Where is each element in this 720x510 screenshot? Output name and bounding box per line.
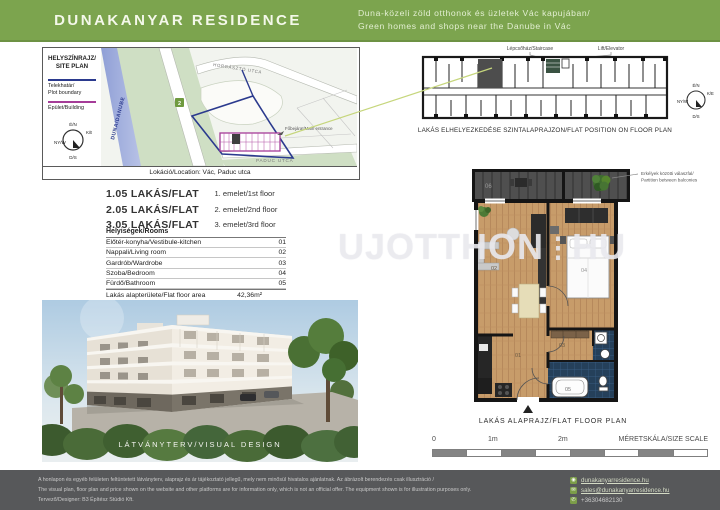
floor-position-plan: Lépcsőház/Staircase Lift/Elevator bbox=[415, 42, 675, 127]
table-row: Szoba/Bedroom 04 bbox=[106, 269, 286, 279]
location-caption: Lokáció/Location: Vác, Paduc utca bbox=[43, 166, 357, 179]
email-row: ✉ sales@dunakanyarresidence.hu bbox=[570, 485, 670, 495]
entrance-marker bbox=[523, 405, 533, 413]
rooms-table: Helyiségek/Rooms Előtér-konyha/Vestibule… bbox=[106, 228, 286, 311]
scale-2m: 2m bbox=[558, 436, 568, 443]
label-bathroom: 05 bbox=[565, 387, 571, 393]
phone-row: ✆ +36304682130 bbox=[570, 495, 670, 505]
building-render bbox=[42, 300, 358, 462]
disclaimer-hu: A honlapon és egyéb felületen feltüntete… bbox=[38, 475, 538, 485]
website-row: ◉ dunakanyarresidence.hu bbox=[570, 475, 670, 485]
flat-list: 1.05 LAKÁS/FLAT 1. emelet/1st floor 2.05… bbox=[106, 184, 277, 231]
label-vestibule: 01 bbox=[515, 353, 521, 359]
header-subtitle-hu: Duna-közeli zöld otthonok és üzletek Vác… bbox=[358, 7, 708, 20]
website-link[interactable]: dunakanyarresidence.hu bbox=[581, 477, 649, 484]
footer-disclaimer: A honlapon és egyéb felületen feltüntete… bbox=[38, 475, 538, 505]
globe-icon: ◉ bbox=[570, 477, 577, 484]
plot-boundary-swatch bbox=[48, 79, 96, 81]
partition-note-line1: Erkélyek közötti válaszfal/ bbox=[641, 171, 694, 176]
phone-icon: ✆ bbox=[570, 497, 577, 504]
compass-s: D/S bbox=[69, 155, 77, 160]
table-row: Előtér-konyha/Vestibule-kitchen 01 bbox=[106, 238, 286, 248]
staircase-label: Lépcsőház/Staircase bbox=[507, 46, 554, 52]
svg-text:NY/W: NY/W bbox=[677, 99, 688, 104]
scale-0: 0 bbox=[432, 436, 436, 443]
toilet bbox=[599, 376, 607, 386]
flat-floor-plan: Erkélyek közötti válaszfal/ Partition be… bbox=[455, 166, 720, 416]
scale-1m: 1m bbox=[488, 436, 498, 443]
building-swatch bbox=[48, 101, 96, 103]
compass-w: NY/W bbox=[54, 140, 67, 145]
compass-e: K/E bbox=[86, 130, 92, 135]
page-title: DUNAKANYAR RESIDENCE bbox=[0, 12, 356, 29]
footer-bar: A honlapon és egyéb felületen feltüntete… bbox=[0, 470, 720, 510]
svg-text:K/E: K/E bbox=[707, 91, 714, 96]
building-footprint bbox=[220, 133, 280, 151]
scale-label: MÉRETSKÁLA/SIZE SCALE bbox=[619, 436, 708, 443]
svg-text:2: 2 bbox=[178, 101, 181, 107]
mail-icon: ✉ bbox=[570, 487, 577, 494]
label-wardrobe: 03 bbox=[559, 343, 565, 349]
scale-bar: 0 1m 2m MÉRETSKÁLA/SIZE SCALE bbox=[430, 436, 708, 458]
label-living: 02 bbox=[491, 266, 497, 272]
washing-machine bbox=[595, 332, 607, 344]
site-plan-map: DUNA/DANUBE HORGÁSZTÓ UTCA Főbejárat/Mai… bbox=[101, 48, 357, 166]
highlighted-flat bbox=[478, 59, 502, 88]
site-plan-legend: HELYSZÍNRAJZ/ SITE PLAN Telekhatár/ Plot… bbox=[43, 48, 102, 166]
site-plan-panel: HELYSZÍNRAJZ/ SITE PLAN Telekhatár/ Plot… bbox=[42, 47, 360, 180]
table-row: Nappali/Living room 02 bbox=[106, 248, 286, 258]
label-bedroom: 04 bbox=[581, 268, 587, 274]
flat-row: 1.05 LAKÁS/FLAT 1. emelet/1st floor bbox=[106, 184, 277, 200]
wardrobe-room-furniture bbox=[551, 331, 589, 338]
position-plan-caption: LAKÁS ELHELYEZKEDÉSE SZINTALAPRAJZON/FLA… bbox=[413, 127, 677, 134]
header-subtitle-en: Green homes and shops near the Danube in… bbox=[358, 20, 708, 33]
compass-n: É/N bbox=[69, 121, 77, 127]
highlighted-unit bbox=[232, 134, 240, 144]
header-bar: DUNAKANYAR RESIDENCE Duna-közeli zöld ot… bbox=[0, 0, 720, 42]
disclaimer-en: The visual plan, floor plan and price sh… bbox=[38, 485, 538, 495]
scale-bar-segments bbox=[432, 449, 708, 457]
svg-text:D/S: D/S bbox=[693, 114, 700, 119]
designer-credit: Tervező/Designer: B3 Építész Stúdió Kft. bbox=[38, 495, 538, 505]
email-link[interactable]: sales@dunakanyarresidence.hu bbox=[581, 487, 670, 494]
elevator-block bbox=[562, 59, 569, 68]
entrance-label: Főbejárat/Main entrance bbox=[285, 126, 333, 131]
label-balcony: 06 bbox=[485, 184, 492, 190]
header-subtitle: Duna-közeli zöld otthonok és üzletek Vác… bbox=[358, 7, 708, 32]
elevator-label: Lift/Elevator bbox=[598, 46, 625, 52]
site-plan-title: HELYSZÍNRAJZ/ SITE PLAN bbox=[43, 55, 101, 71]
compass-rose-small: É/N K/E NY/W D/S bbox=[676, 78, 716, 122]
table-row: Fürdő/Bathroom 05 bbox=[106, 279, 286, 289]
table-row: Gardrób/Wardrobe 03 bbox=[106, 258, 286, 268]
street-bottom-label: PADUC UTCA bbox=[256, 158, 294, 163]
partition-note-line2: Partition between balconies bbox=[641, 178, 698, 183]
phone-number[interactable]: +36304682130 bbox=[581, 497, 622, 504]
floor-plan-caption: LAKÁS ALAPRAJZ/FLAT FLOOR PLAN bbox=[458, 418, 648, 425]
footer-contacts: ◉ dunakanyarresidence.hu ✉ sales@dunakan… bbox=[570, 475, 670, 505]
entrance-opening bbox=[517, 397, 539, 403]
svg-text:É/N: É/N bbox=[693, 83, 700, 88]
compass-rose: É/N K/E NY/W D/S bbox=[54, 118, 92, 162]
plot-boundary-label: Telekhatár/ Plot boundary bbox=[48, 83, 81, 96]
visual-caption: LÁTVÁNYTERV/VISUAL DESIGN bbox=[42, 440, 358, 449]
balcony-furniture bbox=[510, 178, 532, 187]
building-label: Épület/Building bbox=[48, 105, 84, 112]
rooms-header: Helyiségek/Rooms bbox=[106, 228, 286, 238]
washbasin bbox=[601, 350, 610, 359]
dining-table bbox=[519, 284, 539, 318]
flat-row: 2.05 LAKÁS/FLAT 2. emelet/2nd floor bbox=[106, 200, 277, 216]
